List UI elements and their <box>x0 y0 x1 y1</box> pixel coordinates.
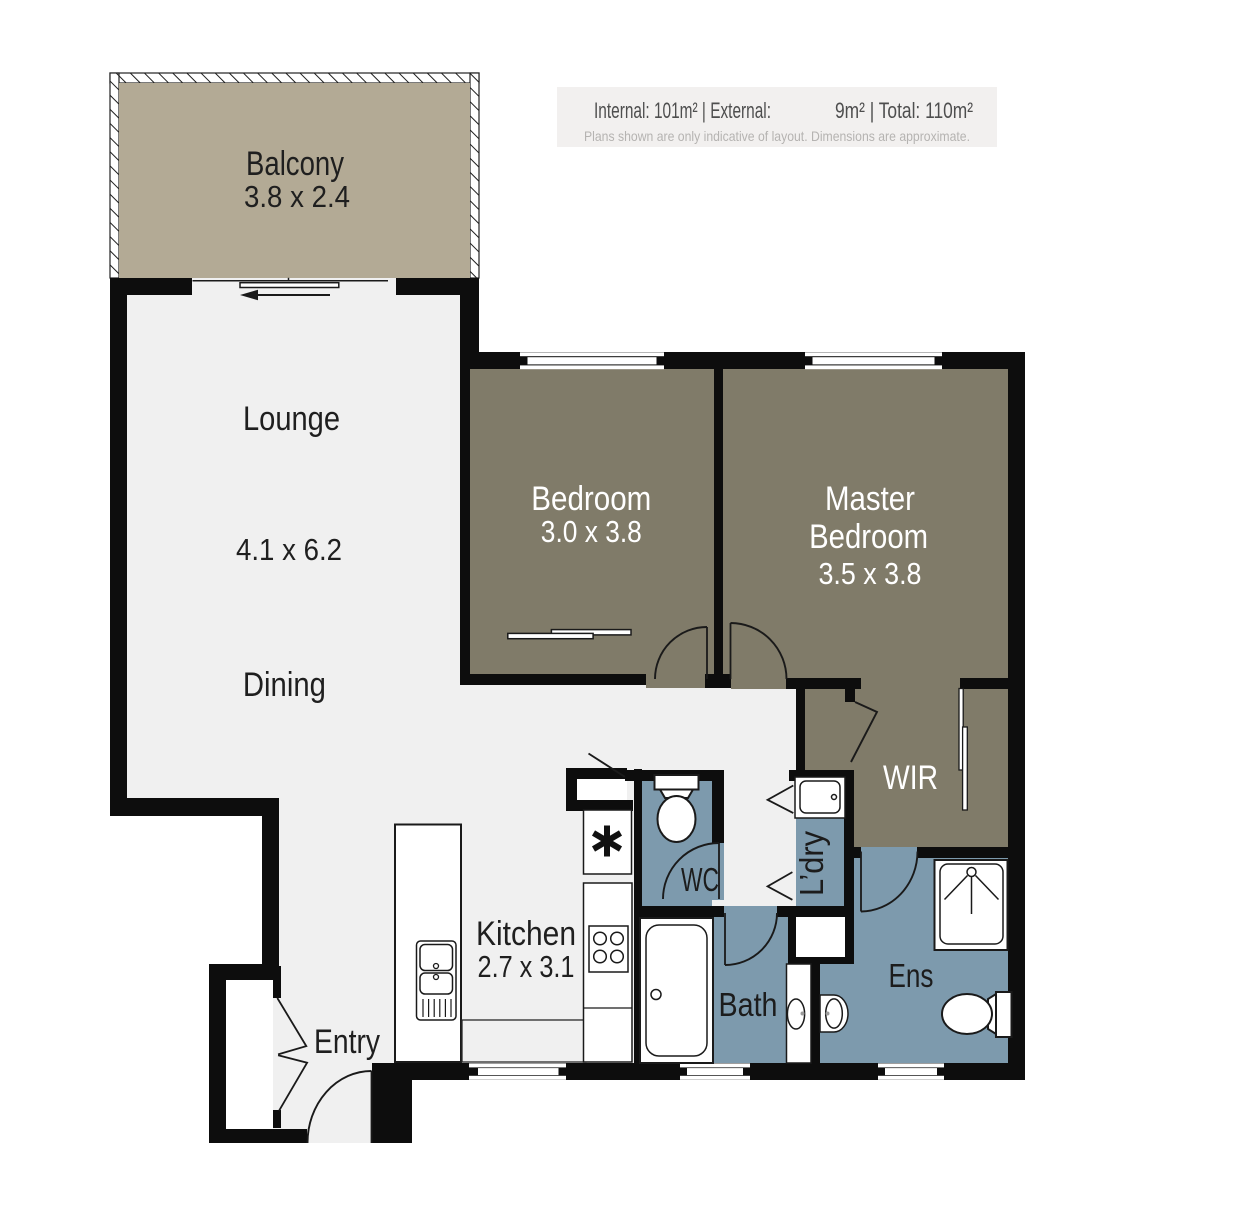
svg-text:Ens: Ens <box>889 957 934 994</box>
svg-text:Master: Master <box>825 480 915 518</box>
svg-text:Lounge: Lounge <box>243 400 340 438</box>
svg-text:9m² | Total: 110m²: 9m² | Total: 110m² <box>835 98 973 123</box>
svg-text:Dining: Dining <box>243 666 326 704</box>
svg-text:Bath: Bath <box>719 986 778 1023</box>
svg-text:Bedroom: Bedroom <box>531 480 651 518</box>
svg-text:3.5 x 3.8: 3.5 x 3.8 <box>819 556 922 591</box>
svg-text:WIR: WIR <box>883 759 938 797</box>
svg-text:4.1 x 6.2: 4.1 x 6.2 <box>236 532 342 567</box>
svg-text:3.8 x 2.4: 3.8 x 2.4 <box>244 179 350 214</box>
svg-text:3.0 x 3.8: 3.0 x 3.8 <box>541 514 642 549</box>
svg-text:Entry: Entry <box>314 1023 380 1061</box>
svg-text:L’dry: L’dry <box>793 831 830 896</box>
svg-text:Balcony: Balcony <box>246 145 344 183</box>
svg-text:WC: WC <box>681 861 719 898</box>
svg-text:Bedroom: Bedroom <box>809 518 928 556</box>
svg-text:Plans shown are only indicativ: Plans shown are only indicative of layou… <box>584 128 970 144</box>
svg-text:2.7 x 3.1: 2.7 x 3.1 <box>478 949 575 984</box>
svg-text:Kitchen: Kitchen <box>476 915 576 953</box>
svg-text:Internal: 101m² | External:: Internal: 101m² | External: <box>594 98 771 123</box>
